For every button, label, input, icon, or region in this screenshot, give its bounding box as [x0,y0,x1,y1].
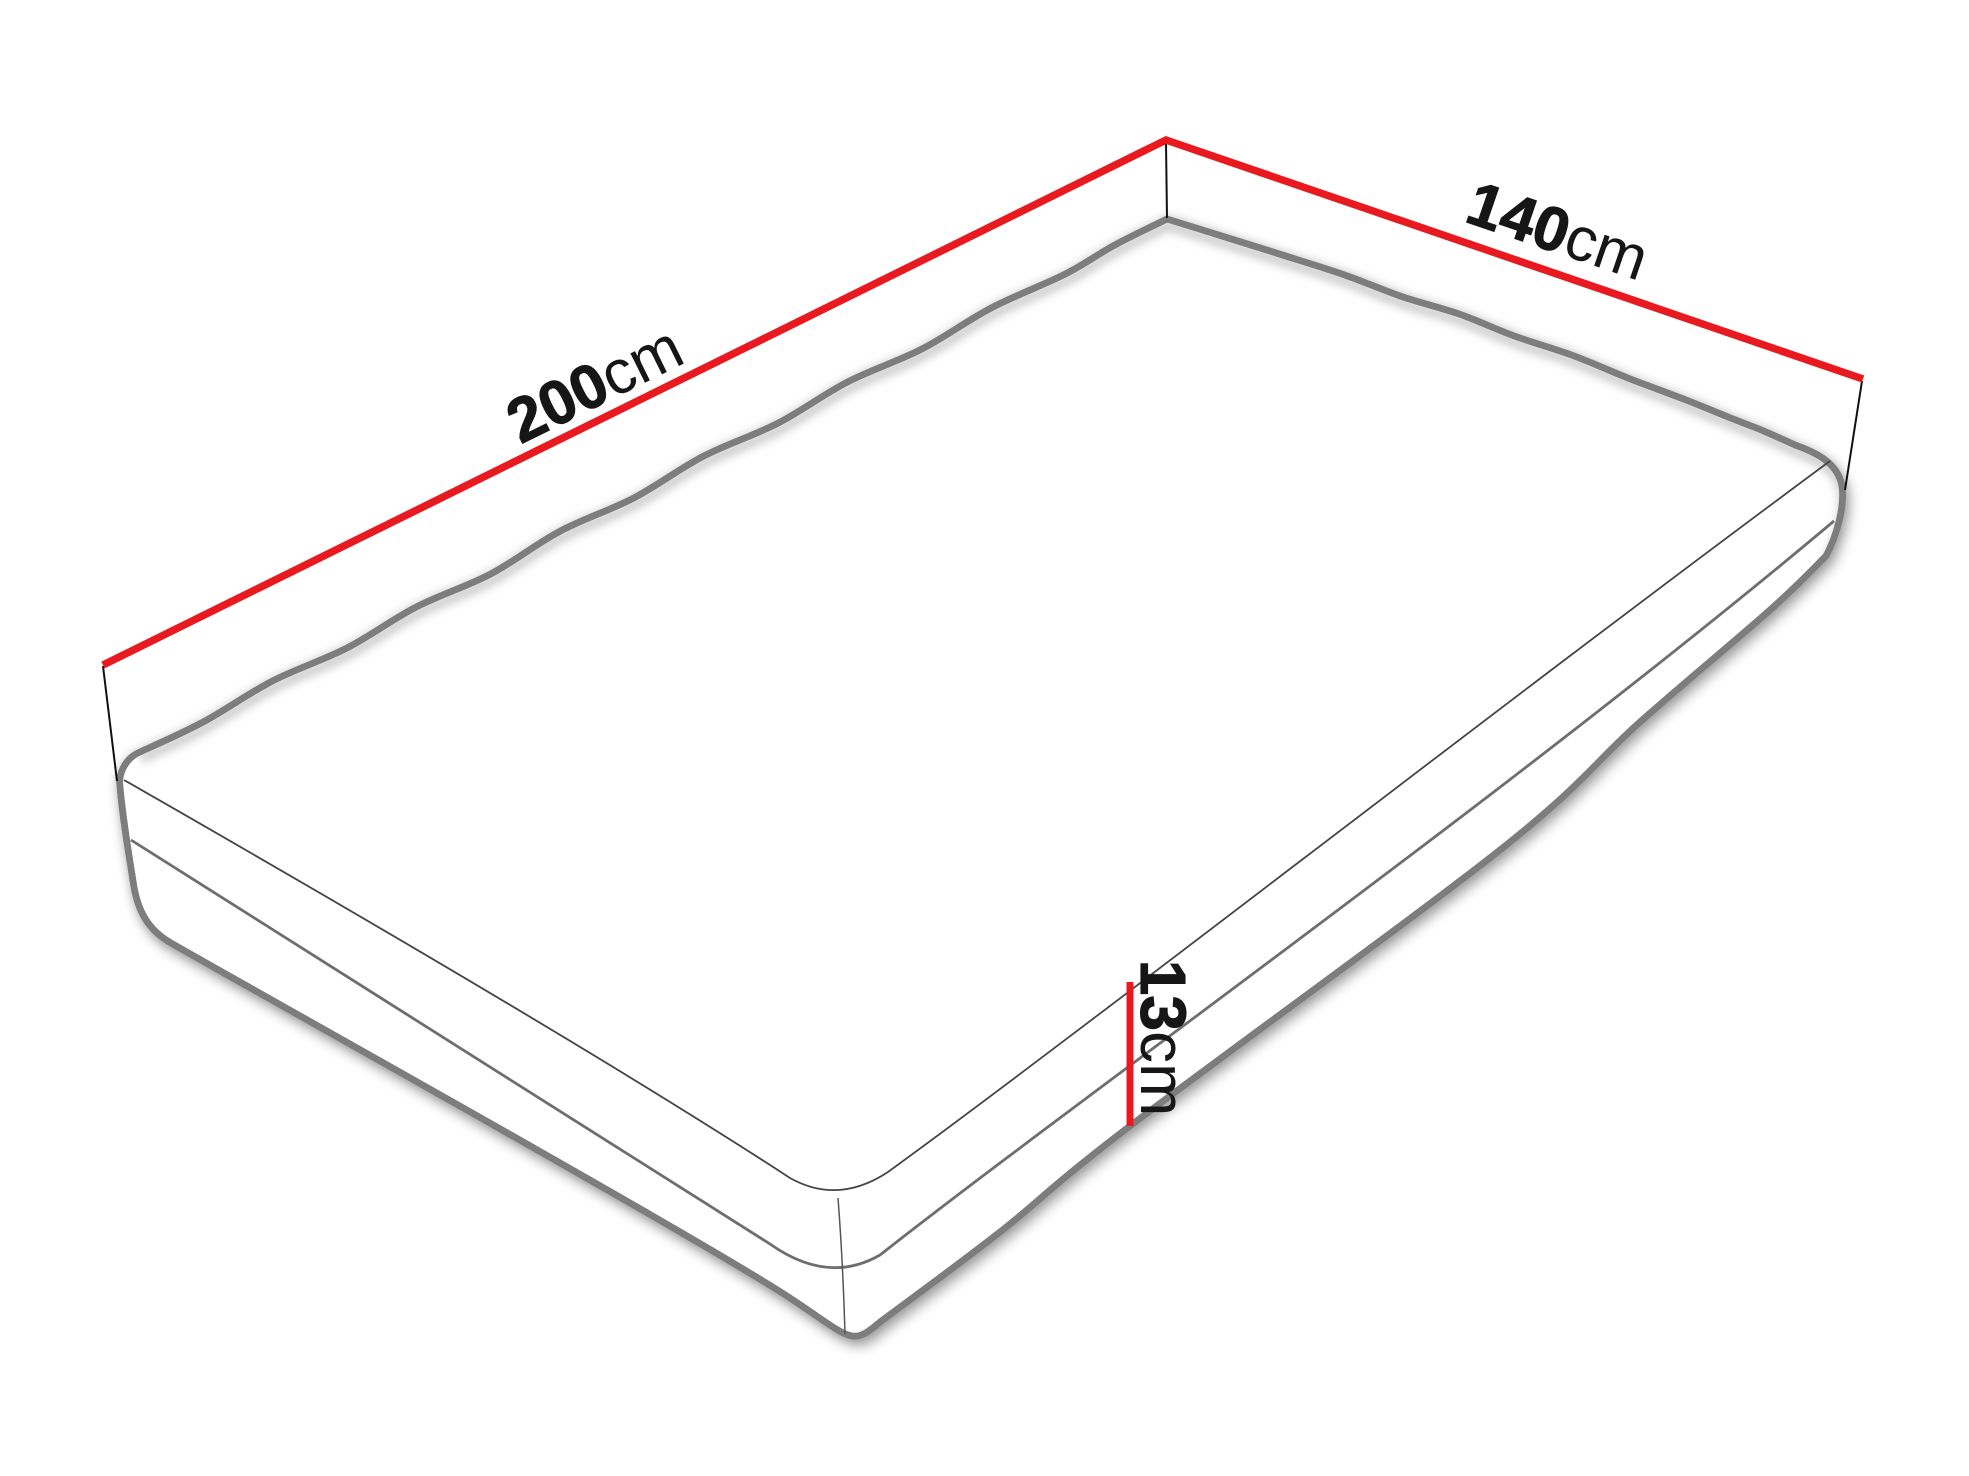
svg-text:13cm: 13cm [1127,960,1199,1117]
svg-text:200cm: 200cm [496,312,693,456]
